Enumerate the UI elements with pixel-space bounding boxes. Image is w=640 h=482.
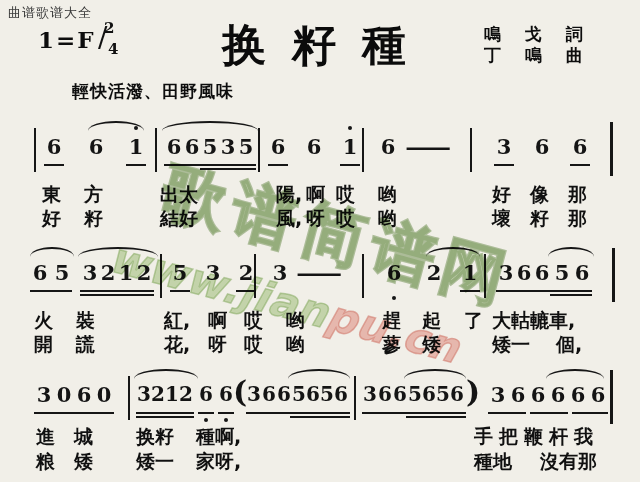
lyric-syllable: 矮一 bbox=[492, 332, 530, 358]
lyric-syllable: 家呀, bbox=[196, 449, 241, 475]
duration-dash: — bbox=[295, 260, 350, 285]
lyric-syllable: 謊 bbox=[76, 332, 95, 358]
note: 5 bbox=[200, 134, 220, 159]
slur-arc bbox=[426, 247, 480, 261]
note: 6 bbox=[384, 260, 404, 285]
note: 6 bbox=[532, 260, 552, 285]
lyric-syllable: 啊 bbox=[208, 308, 227, 334]
note: 6 bbox=[276, 382, 292, 406]
lyric-syllable: 開 bbox=[34, 332, 53, 358]
lyric-syllable: 矮 bbox=[422, 332, 441, 358]
note: 6 bbox=[449, 382, 465, 406]
note: 6 bbox=[377, 382, 393, 406]
lyric-syllable: 大軲轆車, bbox=[492, 308, 575, 334]
note: 6 bbox=[572, 260, 592, 285]
beam bbox=[362, 412, 466, 414]
beam bbox=[170, 290, 190, 292]
lyric-syllable: 壞 bbox=[492, 206, 511, 232]
lyric-syllable: 沒有那 bbox=[540, 449, 597, 475]
song-title: 换籽種 bbox=[222, 16, 432, 75]
note: 6 bbox=[378, 134, 398, 159]
note: 6 bbox=[44, 134, 64, 159]
note: 1 bbox=[460, 260, 480, 285]
beam bbox=[460, 290, 480, 292]
lyric-syllable: 裝 bbox=[76, 308, 95, 334]
beam bbox=[198, 412, 214, 414]
slur-arc bbox=[30, 247, 74, 261]
octave-dot bbox=[204, 418, 208, 422]
barline bbox=[155, 128, 157, 172]
lyric-syllable: 蓼 bbox=[382, 332, 401, 358]
lyric-syllable: 那 bbox=[568, 182, 587, 208]
note: 6 bbox=[268, 134, 288, 159]
barline bbox=[362, 254, 364, 298]
slur-arc bbox=[404, 369, 466, 383]
beam bbox=[136, 416, 194, 418]
beam bbox=[126, 164, 146, 166]
note: 6 bbox=[218, 382, 234, 406]
note: 2 bbox=[98, 260, 118, 285]
score-line-3: 3 0 6 0 3 2 1 2 6 6 ( 3 6 6 5 6 5 6 3 6 … bbox=[0, 370, 640, 482]
lyric-syllable: 方 bbox=[84, 182, 103, 208]
note: 3 bbox=[80, 260, 100, 285]
barline bbox=[484, 254, 486, 298]
site-label: 曲谱歌谱大全 bbox=[8, 4, 92, 22]
beam bbox=[246, 412, 350, 414]
beam bbox=[218, 412, 234, 414]
lyric-syllable: 啊 bbox=[306, 182, 325, 208]
lyric-syllable: 風, bbox=[276, 206, 302, 232]
tempo-marking: 輕快活潑、田野風味 bbox=[72, 80, 234, 103]
end-barline bbox=[610, 122, 613, 176]
lyric-syllable: 像 bbox=[530, 182, 549, 208]
duration-dash: — bbox=[404, 134, 459, 159]
note: 6 bbox=[392, 382, 408, 406]
note: 1 bbox=[126, 134, 146, 159]
note: 5 bbox=[52, 260, 72, 285]
barline bbox=[362, 128, 364, 172]
lyric-syllable: 哟 bbox=[378, 182, 397, 208]
note: 3 bbox=[218, 134, 238, 159]
lyric-syllable: 起 bbox=[422, 308, 441, 334]
beam bbox=[570, 164, 590, 166]
lyric-syllable: 種啊, bbox=[196, 424, 241, 450]
note: 6 bbox=[570, 134, 590, 159]
lyric-syllable: 種地 bbox=[474, 449, 512, 475]
lyric-syllable: 呀 bbox=[208, 332, 227, 358]
note: 1 bbox=[340, 134, 360, 159]
lyric-syllable: 哎 bbox=[336, 182, 355, 208]
octave-dot bbox=[224, 418, 228, 422]
beam bbox=[268, 164, 288, 166]
note: 0 bbox=[54, 382, 74, 407]
beam bbox=[530, 412, 568, 414]
score-line-2: 6 5 3 2 1 2 5 3 2 3 — 6 2 1 3 6 6 5 6 bbox=[0, 248, 640, 370]
note: 2 bbox=[178, 382, 194, 406]
note: 6 bbox=[508, 382, 528, 407]
lyric-syllable: 了 bbox=[464, 308, 483, 334]
note: 3 bbox=[494, 134, 514, 159]
note: 6 bbox=[588, 382, 608, 407]
beam bbox=[80, 290, 154, 292]
lyric-syllable: 那 bbox=[568, 206, 587, 232]
time-signature-slash: / bbox=[98, 21, 107, 54]
barline bbox=[258, 128, 260, 172]
beam bbox=[30, 290, 72, 292]
lyric-syllable: 哎 bbox=[336, 206, 355, 232]
note: 1 bbox=[116, 260, 136, 285]
barline bbox=[470, 128, 472, 172]
lyric-syllable: 哟 bbox=[286, 332, 305, 358]
lyric-syllable: 出太 bbox=[160, 182, 198, 208]
slur-arc bbox=[134, 369, 198, 383]
lyric-syllable: 粮 bbox=[36, 449, 55, 475]
barline bbox=[34, 128, 36, 172]
lyric-syllable: 矮一 bbox=[136, 449, 174, 475]
note: 2 bbox=[134, 260, 154, 285]
lyric-syllable: 紅, bbox=[164, 308, 190, 334]
note: 2 bbox=[424, 260, 444, 285]
lyric-syllable: 火 bbox=[34, 308, 53, 334]
end-barline bbox=[610, 370, 613, 424]
beam bbox=[44, 164, 64, 166]
note: 3 bbox=[246, 382, 262, 406]
beam bbox=[236, 290, 256, 292]
lyric-syllable: 哎 bbox=[244, 332, 263, 358]
note: 6 bbox=[514, 260, 534, 285]
note: 6 bbox=[548, 382, 568, 407]
slur-arc bbox=[288, 369, 350, 383]
lyric-syllable: 手把鞭杆我 bbox=[474, 424, 599, 450]
barline bbox=[128, 376, 130, 420]
note: 6 bbox=[261, 382, 277, 406]
beam bbox=[200, 168, 256, 170]
note: 5 bbox=[552, 260, 572, 285]
beam bbox=[406, 416, 466, 418]
note: 5 bbox=[170, 260, 190, 285]
slur-arc bbox=[162, 121, 258, 135]
lyric-syllable: 哎 bbox=[244, 308, 263, 334]
note: 3 bbox=[496, 260, 516, 285]
octave-dot bbox=[392, 296, 396, 300]
note: 2 bbox=[236, 260, 256, 285]
note: 6 bbox=[74, 382, 94, 407]
note: 5 bbox=[236, 134, 256, 159]
octave-dot bbox=[348, 126, 352, 130]
note: 6 bbox=[198, 382, 214, 406]
beam bbox=[34, 412, 114, 414]
note: 0 bbox=[94, 382, 114, 407]
score-line-1: 6 6 1 6 6 5 3 5 6 6 1 6 — 3 6 6 東 方 出太 bbox=[0, 122, 640, 248]
lyric-syllable: 籽 bbox=[84, 206, 103, 232]
slur-arc bbox=[78, 247, 158, 261]
time-signature-denominator: 4 bbox=[108, 40, 118, 58]
lyric-syllable: 呀 bbox=[306, 206, 325, 232]
lyric-syllable: 矮 bbox=[74, 449, 93, 475]
lyric-syllable: 哟 bbox=[378, 206, 397, 232]
beam bbox=[340, 164, 360, 166]
lyric-syllable: 進 bbox=[36, 424, 55, 450]
lyric-syllable: 趕 bbox=[382, 308, 401, 334]
note: 3 bbox=[203, 260, 223, 285]
beam bbox=[136, 412, 194, 414]
sheet-music-page: 曲谱歌谱大全 1=F 2 / 4 换籽種 鳴戈詞 丁鳴曲 輕快活潑、田野風味 6… bbox=[0, 0, 640, 482]
lyric-syllable: 籽 bbox=[530, 206, 549, 232]
beam bbox=[80, 294, 154, 296]
lyricist-credit: 鳴戈詞 bbox=[484, 23, 607, 46]
note: 3 bbox=[362, 382, 378, 406]
lyric-syllable: 换籽 bbox=[136, 424, 174, 450]
beam bbox=[488, 412, 526, 414]
barline bbox=[254, 254, 256, 298]
composer-credit: 丁鳴曲 bbox=[484, 44, 607, 67]
lyric-syllable: 花, bbox=[164, 332, 190, 358]
slur-arc bbox=[548, 247, 594, 261]
note: 3 bbox=[270, 260, 290, 285]
lyric-syllable: 陽, bbox=[276, 182, 302, 208]
key-signature: 1=F bbox=[38, 26, 96, 53]
beam bbox=[550, 294, 592, 296]
slur-arc bbox=[546, 369, 604, 383]
lyric-syllable: 城 bbox=[74, 424, 93, 450]
note: 6 bbox=[528, 382, 548, 407]
lyric-syllable: 個, bbox=[556, 332, 582, 358]
beam bbox=[164, 164, 256, 166]
lyric-syllable: 東 bbox=[42, 182, 61, 208]
note: 3 bbox=[488, 382, 508, 407]
note: 6 bbox=[182, 134, 202, 159]
note: 6 bbox=[30, 260, 50, 285]
beam bbox=[496, 290, 592, 292]
lyric-syllable: 結好 bbox=[160, 206, 198, 232]
end-barline bbox=[612, 248, 615, 302]
lyric-syllable: 哟 bbox=[286, 308, 305, 334]
lyric-syllable: 好 bbox=[42, 206, 61, 232]
note: 6 bbox=[568, 382, 588, 407]
slur-arc bbox=[88, 121, 144, 135]
beam bbox=[494, 164, 514, 166]
note: 6 bbox=[333, 382, 349, 406]
beam bbox=[572, 412, 608, 414]
beam bbox=[290, 416, 350, 418]
note: 6 bbox=[86, 134, 106, 159]
barline bbox=[160, 254, 162, 298]
close-paren: ) bbox=[466, 374, 480, 409]
note: 6 bbox=[304, 134, 324, 159]
note: 6 bbox=[164, 134, 184, 159]
barline bbox=[354, 376, 356, 420]
note: 3 bbox=[34, 382, 54, 407]
note: 6 bbox=[532, 134, 552, 159]
lyric-syllable: 好 bbox=[492, 182, 511, 208]
